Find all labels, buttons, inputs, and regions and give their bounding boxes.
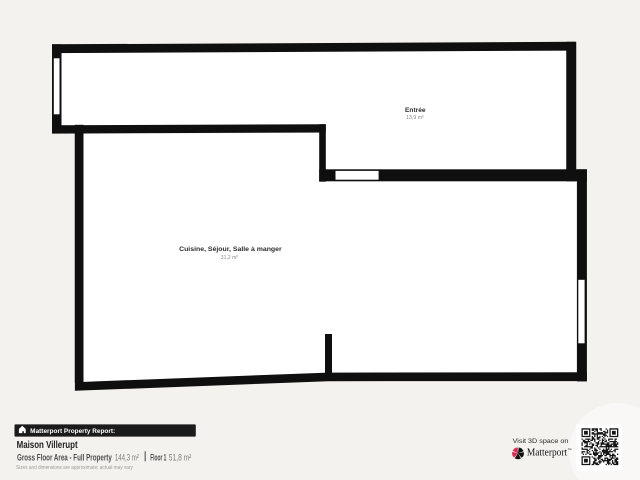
svg-text:Cuisine, Séjour, Salle à mange: Cuisine, Séjour, Salle à manger (179, 246, 282, 253)
svg-text:™: ™ (568, 447, 572, 452)
svg-text:Maison Villerupt: Maison Villerupt (17, 440, 78, 451)
svg-text:Gross Floor Area - Full Proper: Gross Floor Area - Full Property (17, 452, 112, 462)
svg-text:31,2 m²: 31,2 m² (221, 255, 238, 261)
svg-text:Floor 1: Floor 1 (150, 452, 166, 462)
svg-text:Entrée: Entrée (405, 107, 426, 114)
svg-text:Visit 3D space on: Visit 3D space on (513, 438, 569, 445)
svg-text:Matterport: Matterport (527, 447, 567, 458)
svg-text:144,3 m²: 144,3 m² (115, 452, 139, 462)
svg-text:13,9 m²: 13,9 m² (406, 115, 424, 121)
svg-text:51,8 m²: 51,8 m² (169, 452, 192, 462)
svg-text:Sizes and dimensions are appro: Sizes and dimensions are approximate; ac… (16, 465, 133, 471)
svg-text:Matterport Property Report:: Matterport Property Report: (30, 428, 115, 435)
